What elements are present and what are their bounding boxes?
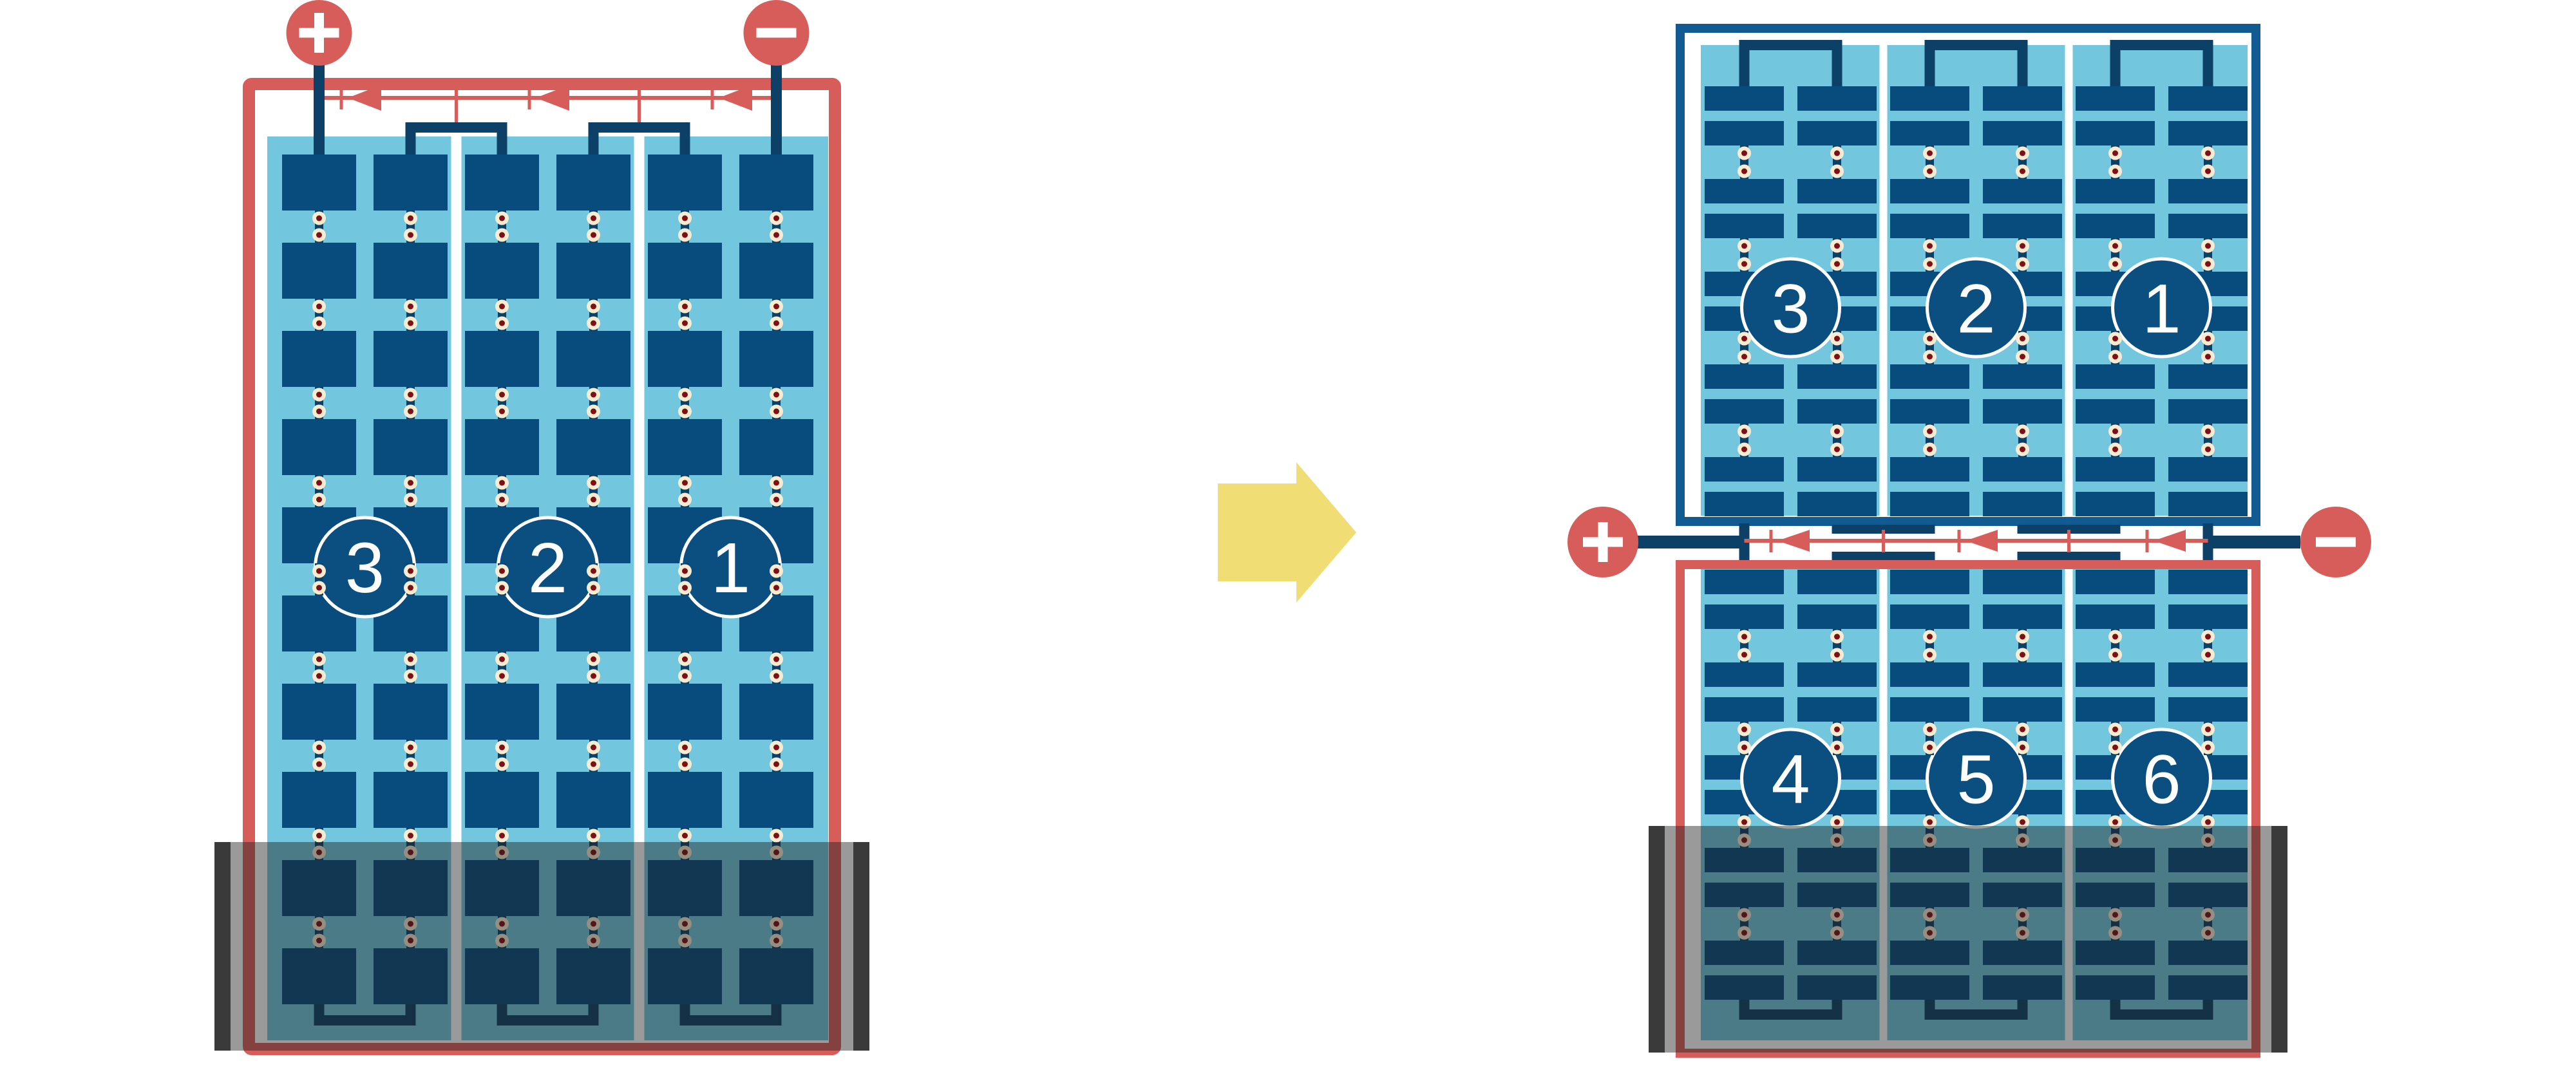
solder-dot-icon	[1741, 447, 1747, 453]
solder-dot-icon	[1834, 336, 1840, 342]
solar-half-cell	[1890, 86, 1969, 111]
solder-dot-icon	[1741, 745, 1747, 751]
solar-half-cell	[1705, 697, 1784, 722]
solder-dot-icon	[591, 480, 596, 486]
top-string-connector	[1925, 40, 2028, 50]
diode-cathode-tick	[1958, 530, 1961, 552]
solder-dot-icon	[1834, 429, 1840, 435]
solder-dot-icon	[1927, 652, 1933, 658]
top-connector-leg	[406, 129, 416, 158]
solar-half-cell	[1797, 121, 1877, 145]
negative-terminal-lead	[771, 61, 782, 155]
solder-dot-icon	[316, 321, 322, 326]
solar-half-cell	[2168, 364, 2248, 389]
solder-dot-icon	[2020, 151, 2025, 156]
solder-dot-icon	[2020, 447, 2025, 453]
solder-dot-icon	[499, 392, 505, 398]
solder-dot-icon	[773, 833, 779, 839]
solder-dot-icon	[316, 657, 322, 662]
solar-half-cell	[2076, 179, 2155, 203]
solder-dot-icon	[408, 232, 413, 238]
solar-cell	[739, 419, 813, 475]
plus-icon	[1598, 522, 1608, 562]
solar-half-cell	[1705, 662, 1784, 687]
solder-dot-icon	[1834, 727, 1840, 733]
top-connector-leg	[2203, 45, 2213, 86]
solder-dot-icon	[682, 409, 688, 415]
solder-dot-icon	[773, 762, 779, 767]
solder-dot-icon	[1927, 243, 1933, 249]
top-connector-leg	[2018, 45, 2028, 86]
positive-terminal	[1567, 507, 1638, 577]
string-label: 5	[1956, 740, 1995, 818]
diode-tap-stub	[455, 86, 458, 125]
solar-half-cell	[1983, 457, 2062, 482]
solar-half-cell	[2168, 86, 2248, 111]
transform-arrow-icon	[1218, 462, 1356, 603]
solar-half-cell	[2076, 364, 2155, 389]
solder-dot-icon	[1741, 261, 1747, 267]
solder-dot-icon	[1927, 447, 1933, 453]
solder-dot-icon	[2205, 169, 2211, 174]
solar-half-cell	[1983, 492, 2062, 516]
solder-dot-icon	[408, 585, 413, 591]
solder-dot-icon	[499, 833, 505, 839]
solder-dot-icon	[1927, 169, 1933, 174]
solder-dot-icon	[773, 585, 779, 591]
solar-half-cell	[1983, 697, 2062, 722]
solder-dot-icon	[591, 321, 596, 326]
solder-dot-icon	[773, 409, 779, 415]
solar-half-cell	[1797, 214, 1877, 238]
solar-half-cell	[2076, 86, 2155, 111]
solar-cell	[648, 772, 722, 828]
negative-terminal	[2300, 507, 2371, 577]
solar-half-cell	[1890, 364, 1969, 389]
solder-dot-icon	[408, 657, 413, 662]
solar-half-cell	[1983, 121, 2062, 145]
solar-half-cell	[2076, 604, 2155, 629]
solar-cell	[648, 155, 722, 211]
solar-half-cell	[1797, 662, 1877, 687]
solder-dot-icon	[1927, 261, 1933, 267]
solder-dot-icon	[408, 568, 413, 574]
solar-cell	[374, 155, 448, 211]
solder-dot-icon	[1834, 243, 1840, 249]
solder-dot-icon	[1927, 634, 1933, 640]
solder-dot-icon	[2112, 169, 2118, 174]
solder-dot-icon	[2112, 261, 2118, 267]
diode-cathode-tick	[528, 86, 531, 109]
solder-dot-icon	[408, 833, 413, 839]
solar-cell	[556, 772, 630, 828]
solar-cell	[282, 331, 356, 387]
solar-half-cell	[1705, 570, 1784, 594]
solar-half-cell	[1797, 697, 1877, 722]
solar-half-cell	[1983, 604, 2062, 629]
positive-terminal	[287, 0, 352, 66]
solder-dot-icon	[591, 568, 596, 574]
solar-half-cell	[1890, 662, 1969, 687]
solar-half-cell	[1890, 570, 1969, 594]
solder-dot-icon	[499, 673, 505, 679]
solder-dot-icon	[499, 480, 505, 486]
left-module-full-cell: 321	[214, 0, 869, 1051]
string-label-badge: 4	[1742, 729, 1840, 827]
solder-dot-icon	[1834, 820, 1840, 825]
solder-dot-icon	[773, 497, 779, 503]
solder-dot-icon	[2020, 243, 2025, 249]
solder-dot-icon	[2112, 652, 2118, 658]
solar-half-cell	[2168, 604, 2248, 629]
solder-dot-icon	[2112, 429, 2118, 435]
minus-icon	[757, 28, 797, 38]
solder-dot-icon	[408, 409, 413, 415]
solar-half-cell	[1890, 179, 1969, 203]
solar-cell	[739, 684, 813, 740]
diode-cathode-tick	[340, 86, 343, 109]
solder-dot-icon	[682, 232, 688, 238]
solder-dot-icon	[316, 304, 322, 310]
solder-dot-icon	[499, 762, 505, 767]
solar-cell	[374, 331, 448, 387]
solar-half-cell	[2076, 214, 2155, 238]
positive-terminal-lead	[314, 61, 325, 155]
solder-dot-icon	[773, 216, 779, 221]
solar-half-cell	[2168, 662, 2248, 687]
solder-dot-icon	[773, 321, 779, 326]
solar-half-cell	[1797, 86, 1877, 111]
top-string-connector	[1739, 40, 1842, 50]
solder-dot-icon	[499, 232, 505, 238]
solder-dot-icon	[2020, 261, 2025, 267]
solder-dot-icon	[1927, 151, 1933, 156]
solar-half-cell	[1705, 492, 1784, 516]
solder-dot-icon	[1834, 169, 1840, 174]
solar-cell	[374, 772, 448, 828]
solder-dot-icon	[316, 568, 322, 574]
solder-dot-icon	[773, 657, 779, 662]
solder-dot-icon	[316, 833, 322, 839]
solder-dot-icon	[316, 480, 322, 486]
solar-half-cell	[2076, 121, 2155, 145]
solder-dot-icon	[682, 497, 688, 503]
solder-dot-icon	[1927, 727, 1933, 733]
diode-arrow-icon	[1777, 530, 1810, 552]
solar-half-cell	[1890, 697, 1969, 722]
solar-half-cell	[2076, 697, 2155, 722]
solder-dot-icon	[408, 216, 413, 221]
solder-dot-icon	[2112, 745, 2118, 751]
solar-half-cell	[2168, 179, 2248, 203]
solar-half-cell	[1797, 492, 1877, 516]
junction-tab-lower	[1832, 552, 1935, 560]
string-label-badge: 3	[1742, 259, 1840, 357]
solder-dot-icon	[2112, 727, 2118, 733]
solder-dot-icon	[499, 585, 505, 591]
solder-dot-icon	[591, 232, 596, 238]
solder-dot-icon	[2205, 727, 2211, 733]
diode-cathode-tick	[2146, 530, 2149, 552]
solder-dot-icon	[2020, 169, 2025, 174]
solar-half-cell	[2076, 457, 2155, 482]
solder-dot-icon	[2020, 634, 2025, 640]
solder-dot-icon	[2020, 652, 2025, 658]
solar-cell	[739, 243, 813, 299]
solder-dot-icon	[682, 745, 688, 751]
solder-dot-icon	[2020, 727, 2025, 733]
solar-half-cell	[1705, 121, 1784, 145]
solder-dot-icon	[2112, 243, 2118, 249]
solder-dot-icon	[1927, 745, 1933, 751]
solar-half-cell	[1983, 662, 2062, 687]
shade-bar	[214, 842, 231, 1051]
diode-arrow-icon	[2154, 530, 2186, 552]
solar-half-cell	[1890, 492, 1969, 516]
solar-half-cell	[1983, 214, 2062, 238]
solder-dot-icon	[682, 216, 688, 221]
solder-dot-icon	[408, 745, 413, 751]
solder-dot-icon	[591, 585, 596, 591]
solar-cell	[556, 243, 630, 299]
solar-cell	[648, 243, 722, 299]
top-connector-leg	[680, 129, 690, 158]
solder-dot-icon	[682, 304, 688, 310]
shade-overlay	[214, 842, 869, 1051]
solder-dot-icon	[316, 585, 322, 591]
solder-dot-icon	[2112, 820, 2118, 825]
solar-cell	[282, 155, 356, 211]
solder-dot-icon	[408, 392, 413, 398]
solar-half-cell	[1705, 179, 1784, 203]
string-divider	[2065, 45, 2073, 516]
solder-dot-icon	[2020, 354, 2025, 360]
solder-dot-icon	[682, 585, 688, 591]
string-label: 2	[528, 529, 567, 608]
solder-dot-icon	[591, 657, 596, 662]
diode-tap-tick	[2067, 530, 2070, 552]
solar-cell	[465, 684, 539, 740]
solder-dot-icon	[2205, 634, 2211, 640]
solder-dot-icon	[316, 232, 322, 238]
solder-dot-icon	[316, 673, 322, 679]
solar-cell	[282, 684, 356, 740]
solar-half-cell	[1797, 179, 1877, 203]
solder-dot-icon	[2205, 151, 2211, 156]
solder-dot-icon	[591, 392, 596, 398]
solder-dot-icon	[2112, 151, 2118, 156]
solar-cell	[739, 331, 813, 387]
solder-dot-icon	[682, 392, 688, 398]
solder-dot-icon	[316, 216, 322, 221]
solar-cell	[465, 772, 539, 828]
solder-dot-icon	[773, 568, 779, 574]
solder-dot-icon	[1741, 151, 1747, 156]
solar-half-cell	[1705, 86, 1784, 111]
solder-dot-icon	[773, 304, 779, 310]
solder-dot-icon	[773, 673, 779, 679]
right-module-half-cut: 321456	[1567, 28, 2371, 1053]
solder-dot-icon	[316, 392, 322, 398]
solder-dot-icon	[2020, 820, 2025, 825]
solar-half-cell	[2076, 570, 2155, 594]
negative-terminal-bus	[2208, 536, 2301, 548]
positive-terminal-bus	[1637, 536, 1745, 548]
solder-dot-icon	[682, 762, 688, 767]
solder-dot-icon	[1741, 634, 1747, 640]
top-string-connector	[406, 122, 507, 133]
solder-dot-icon	[1927, 429, 1933, 435]
solder-dot-icon	[1741, 354, 1747, 360]
solar-half-cell	[2168, 399, 2248, 424]
solder-dot-icon	[499, 321, 505, 326]
solder-dot-icon	[591, 762, 596, 767]
solar-cell	[465, 155, 539, 211]
solder-dot-icon	[499, 568, 505, 574]
solar-half-cell	[2168, 121, 2248, 145]
solder-dot-icon	[316, 745, 322, 751]
solder-dot-icon	[2205, 820, 2211, 825]
solar-half-cell	[1983, 179, 2062, 203]
solder-dot-icon	[499, 409, 505, 415]
solar-half-cell	[2076, 492, 2155, 516]
top-connector-leg	[497, 129, 507, 158]
solder-dot-icon	[1834, 447, 1840, 453]
plus-icon	[314, 13, 324, 53]
solder-dot-icon	[591, 304, 596, 310]
shade-bar	[853, 842, 869, 1051]
solder-dot-icon	[2205, 354, 2211, 360]
string-label-badge: 3	[316, 518, 415, 617]
solder-dot-icon	[773, 745, 779, 751]
string-label-badge: 6	[2113, 729, 2211, 827]
solder-dot-icon	[499, 745, 505, 751]
solder-dot-icon	[1927, 336, 1933, 342]
solder-dot-icon	[591, 216, 596, 221]
solder-dot-icon	[2112, 447, 2118, 453]
solder-dot-icon	[1834, 151, 1840, 156]
solder-dot-icon	[1741, 652, 1747, 658]
string-label: 3	[1771, 269, 1810, 347]
diode-cathode-tick	[1770, 530, 1773, 552]
solder-dot-icon	[682, 673, 688, 679]
solder-dot-icon	[591, 833, 596, 839]
solar-half-cell	[2168, 570, 2248, 594]
solder-dot-icon	[2020, 336, 2025, 342]
solar-cell	[374, 684, 448, 740]
solder-dot-icon	[773, 232, 779, 238]
solar-cell	[648, 331, 722, 387]
solder-dot-icon	[408, 762, 413, 767]
solder-dot-icon	[682, 657, 688, 662]
solder-dot-icon	[1741, 169, 1747, 174]
solder-dot-icon	[1834, 652, 1840, 658]
solder-dot-icon	[499, 216, 505, 221]
solar-half-cell	[1983, 570, 2062, 594]
solar-half-cell	[1890, 604, 1969, 629]
shade-bar	[1649, 826, 1665, 1053]
solar-cell	[282, 243, 356, 299]
solar-half-cell	[1705, 364, 1784, 389]
solar-cell	[648, 419, 722, 475]
solder-dot-icon	[2112, 336, 2118, 342]
solder-dot-icon	[682, 321, 688, 326]
solder-dot-icon	[2205, 429, 2211, 435]
solder-dot-icon	[591, 745, 596, 751]
solar-half-cell	[1797, 570, 1877, 594]
solder-dot-icon	[2205, 336, 2211, 342]
string-label: 6	[2142, 740, 2181, 818]
solar-cell	[374, 419, 448, 475]
solder-dot-icon	[408, 497, 413, 503]
shade-overlay	[1649, 826, 2287, 1053]
shade-bar	[2271, 826, 2287, 1053]
solar-cell	[465, 331, 539, 387]
solder-dot-icon	[499, 497, 505, 503]
solder-dot-icon	[1927, 354, 1933, 360]
solder-dot-icon	[591, 409, 596, 415]
solar-bypass-diode-diagram: 321 321456	[0, 0, 2576, 1068]
string-label: 4	[1771, 740, 1810, 818]
solder-dot-icon	[1834, 354, 1840, 360]
solar-half-cell	[1890, 214, 1969, 238]
solar-half-cell	[1705, 604, 1784, 629]
solder-dot-icon	[2112, 354, 2118, 360]
solder-dot-icon	[1741, 727, 1747, 733]
diode-cathode-tick	[711, 86, 714, 109]
top-connector-leg	[589, 129, 599, 158]
solar-half-cell	[2076, 399, 2155, 424]
solar-half-cell	[1705, 399, 1784, 424]
solar-cell	[739, 155, 813, 211]
solar-half-cell	[1705, 457, 1784, 482]
diode-tap-stub	[638, 86, 641, 125]
right-arrow-icon	[1218, 462, 1356, 603]
solder-dot-icon	[2205, 261, 2211, 267]
solar-cell	[556, 684, 630, 740]
solder-dot-icon	[2205, 243, 2211, 249]
solar-cell	[556, 155, 630, 211]
solder-dot-icon	[1834, 261, 1840, 267]
solder-dot-icon	[499, 304, 505, 310]
solder-dot-icon	[682, 568, 688, 574]
solder-dot-icon	[316, 497, 322, 503]
solar-cell	[282, 772, 356, 828]
string-label-badge: 5	[1927, 729, 2025, 827]
string-label: 1	[2142, 269, 2181, 347]
solder-dot-icon	[1741, 429, 1747, 435]
solar-cell	[556, 419, 630, 475]
junction-tab-lower	[2018, 552, 2121, 560]
solar-cell	[739, 772, 813, 828]
solder-dot-icon	[2205, 447, 2211, 453]
string-label-badge: 2	[1927, 259, 2025, 357]
solder-dot-icon	[2112, 634, 2118, 640]
solder-dot-icon	[499, 657, 505, 662]
solder-dot-icon	[1834, 745, 1840, 751]
solder-dot-icon	[1741, 820, 1747, 825]
solder-dot-icon	[682, 833, 688, 839]
solar-half-cell	[1797, 364, 1877, 389]
minus-icon	[2316, 538, 2356, 547]
solar-cell	[556, 331, 630, 387]
string-label-badge: 2	[498, 518, 598, 617]
solar-cell	[282, 419, 356, 475]
solar-half-cell	[2168, 697, 2248, 722]
solder-dot-icon	[773, 480, 779, 486]
solder-dot-icon	[2205, 745, 2211, 751]
solar-half-cell	[1797, 604, 1877, 629]
